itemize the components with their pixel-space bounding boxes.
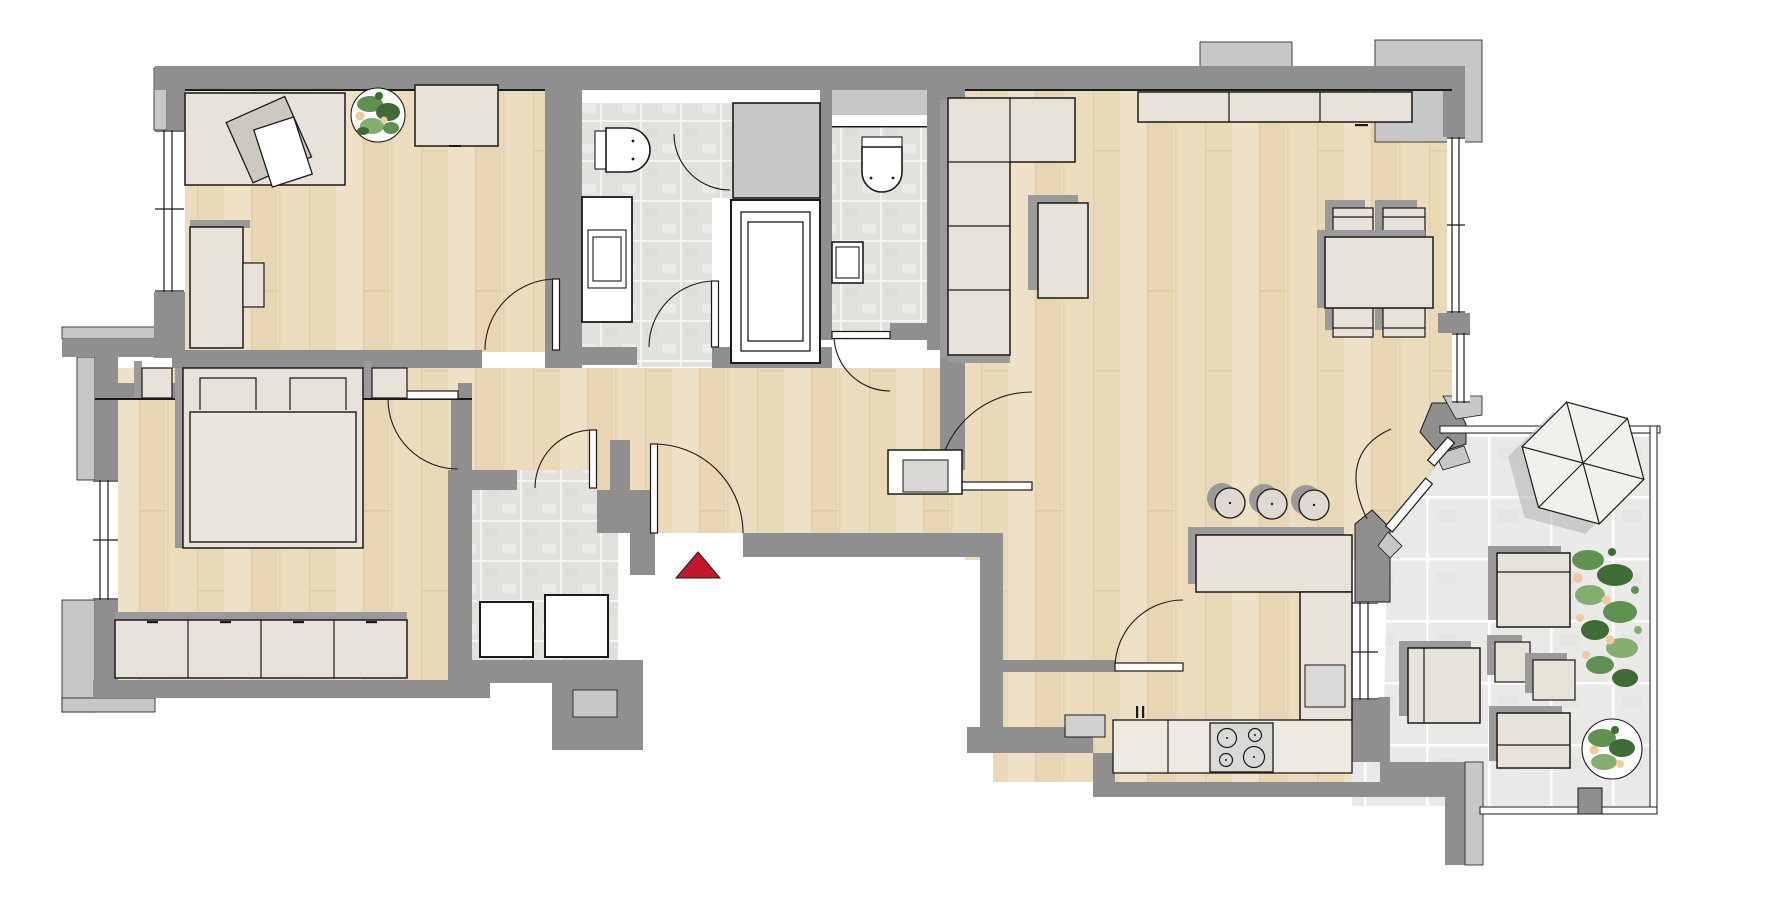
- cabinet-extension: [243, 263, 264, 307]
- coffee-table: [1038, 203, 1088, 298]
- terrace-potted-plant: [1582, 719, 1642, 779]
- cube-table-2: [1533, 660, 1575, 700]
- window-living-east: [1447, 137, 1465, 313]
- wall: [630, 533, 655, 575]
- toilet: [595, 128, 650, 172]
- wc-duct-shaft: [832, 90, 927, 115]
- mattress: [190, 412, 356, 542]
- lounge-seat-1: [1497, 553, 1570, 627]
- wall-bathroom-wc: [820, 90, 832, 340]
- installation-niche: [733, 103, 820, 198]
- wall-office-south: [172, 350, 482, 368]
- exterior-trim: [77, 357, 95, 480]
- wall: [1443, 90, 1465, 137]
- wall: [610, 440, 630, 492]
- kitchen-sink: [1305, 665, 1345, 707]
- wall-bedroom-south: [93, 680, 490, 698]
- entrance-arrow: [676, 552, 720, 578]
- wardrobe: [115, 620, 407, 678]
- dryer: [545, 595, 608, 657]
- wall: [1352, 697, 1390, 762]
- wall: [1445, 762, 1465, 865]
- shadow: [948, 355, 1010, 363]
- office-plant: [351, 88, 405, 142]
- chair: [1383, 308, 1425, 337]
- shadow: [134, 361, 142, 398]
- office-sideboard: [415, 85, 498, 146]
- shadow: [364, 361, 372, 398]
- wall: [167, 68, 185, 130]
- wall: [1380, 762, 1445, 797]
- wall: [597, 490, 657, 533]
- window-bedroom-west: [93, 480, 118, 600]
- lounge-seat-3: [1497, 713, 1570, 768]
- nightstand-left: [142, 368, 172, 398]
- wall: [1438, 313, 1470, 333]
- floor-plan-page: [0, 0, 1788, 906]
- washing-machine: [480, 602, 533, 657]
- shadow: [940, 100, 948, 358]
- wall: [1003, 660, 1115, 672]
- dining-table: [1325, 237, 1433, 308]
- wall-pier-diagonal-south: [1355, 510, 1390, 602]
- tall-cabinet: [190, 227, 243, 348]
- exterior-trim: [62, 600, 95, 712]
- window-office-west: [155, 130, 184, 292]
- floor-plan-canvas: [0, 0, 1788, 906]
- lounge-seat-2: [1408, 648, 1480, 723]
- exterior-shaft-box: [573, 690, 617, 717]
- wall: [62, 339, 183, 357]
- wall-kitchen-south: [1115, 782, 1385, 797]
- wc-toilet: [862, 137, 902, 192]
- wall: [448, 470, 472, 683]
- railing-post: [1578, 788, 1602, 814]
- wall: [448, 660, 643, 683]
- handle-mark: [449, 145, 461, 147]
- shadow: [115, 612, 407, 620]
- utility-appliances: [480, 595, 608, 657]
- wall-top: [155, 66, 1465, 90]
- wc-washbasin: [832, 242, 863, 283]
- wall: [582, 347, 637, 365]
- bar-stools: [1207, 483, 1329, 520]
- sideboard-row: [1138, 92, 1412, 126]
- wall: [1093, 753, 1115, 797]
- nightstand-right: [372, 368, 407, 398]
- bathtub: [731, 200, 820, 363]
- wall-office-bathroom: [545, 90, 582, 368]
- hall-cabinet-front: [903, 460, 948, 492]
- shadow: [175, 368, 183, 548]
- cube-table-1: [1495, 642, 1530, 682]
- exterior-trim: [62, 698, 155, 712]
- wall-hall-south: [743, 533, 1003, 557]
- exterior-pier-top: [1200, 42, 1292, 68]
- line: [832, 126, 927, 128]
- wall: [458, 383, 472, 400]
- chair: [1333, 308, 1373, 337]
- kitchen-shelf: [1065, 715, 1105, 737]
- wall: [980, 557, 1003, 727]
- window-dining-terrace: [1452, 333, 1470, 403]
- wall: [890, 323, 927, 340]
- wall: [95, 357, 118, 480]
- vanity-washbasin: [582, 197, 632, 322]
- dining-set: [1317, 200, 1433, 337]
- handle-mark: [1355, 124, 1368, 126]
- bar-counter: [1196, 535, 1352, 592]
- utility-door-threshold: [517, 470, 593, 490]
- bathroom-door-threshold: [637, 347, 712, 367]
- wc-ledge: [832, 115, 927, 127]
- cooktop: [1210, 723, 1273, 772]
- window-kitchen-terrace: [1352, 602, 1378, 700]
- line: [965, 89, 1452, 91]
